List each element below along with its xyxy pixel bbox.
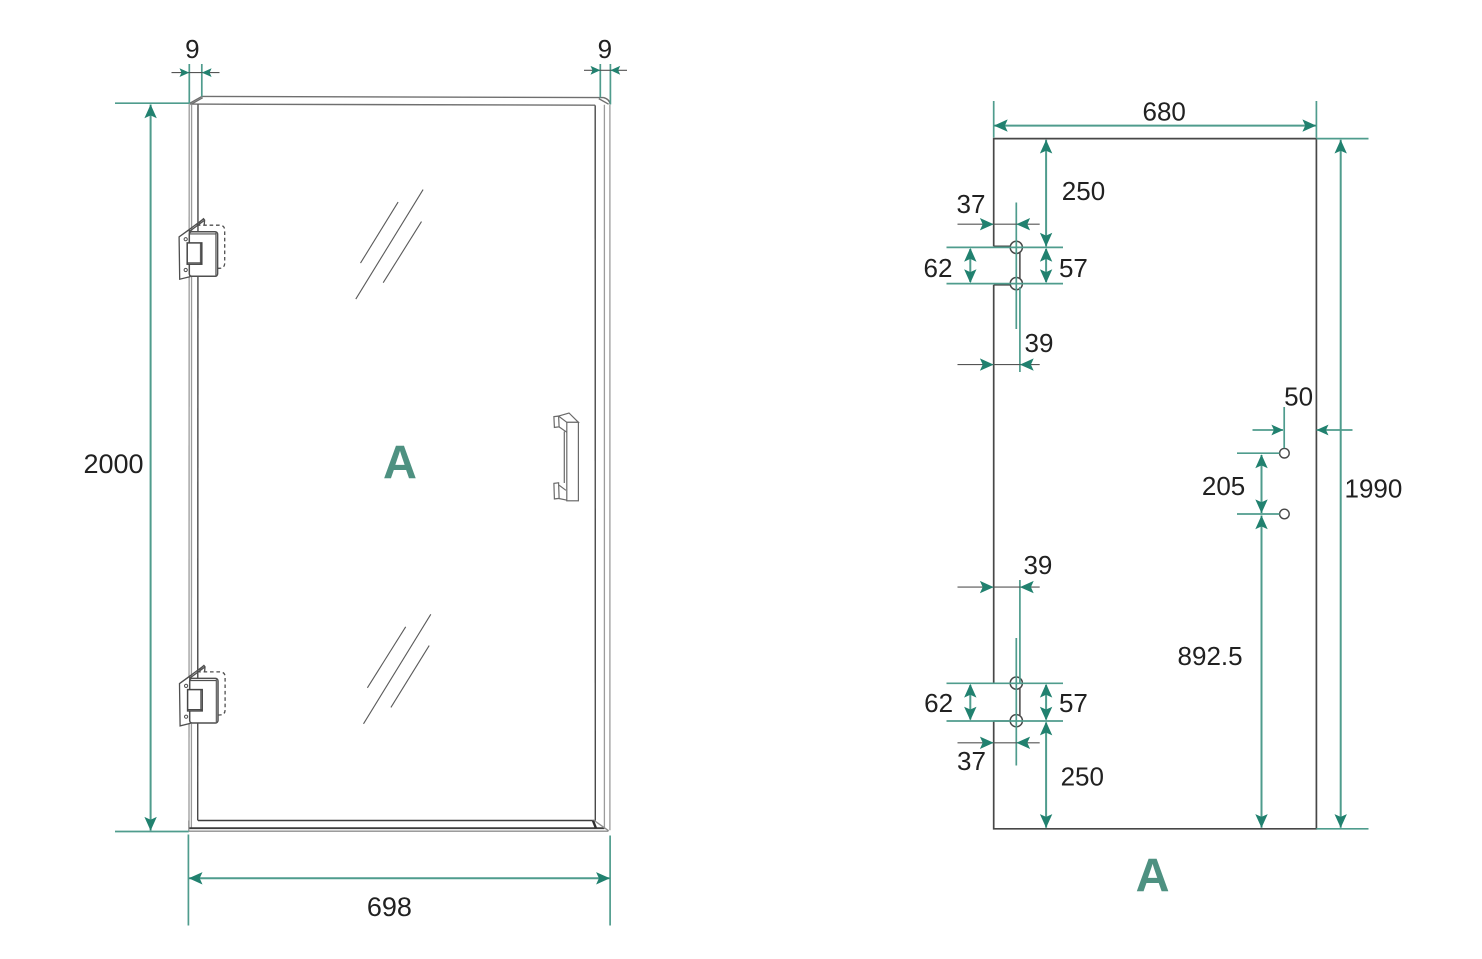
svg-text:250: 250 xyxy=(1062,176,1105,206)
svg-text:37: 37 xyxy=(957,746,986,776)
svg-text:39: 39 xyxy=(1025,328,1054,358)
svg-text:A: A xyxy=(383,436,417,489)
svg-text:698: 698 xyxy=(367,892,412,922)
svg-text:62: 62 xyxy=(924,253,953,283)
svg-text:680: 680 xyxy=(1143,96,1186,126)
svg-text:9: 9 xyxy=(185,34,199,64)
svg-text:62: 62 xyxy=(924,688,953,718)
svg-text:57: 57 xyxy=(1059,253,1088,283)
svg-text:37: 37 xyxy=(957,189,986,219)
svg-text:205: 205 xyxy=(1202,471,1245,501)
svg-text:39: 39 xyxy=(1023,550,1052,580)
svg-text:892.5: 892.5 xyxy=(1178,641,1243,671)
svg-text:1990: 1990 xyxy=(1345,473,1403,503)
svg-text:9: 9 xyxy=(598,34,612,64)
svg-text:2000: 2000 xyxy=(83,449,143,479)
svg-text:50: 50 xyxy=(1284,381,1313,411)
svg-text:A: A xyxy=(1136,849,1170,902)
svg-text:57: 57 xyxy=(1059,688,1088,718)
svg-text:250: 250 xyxy=(1061,761,1104,791)
